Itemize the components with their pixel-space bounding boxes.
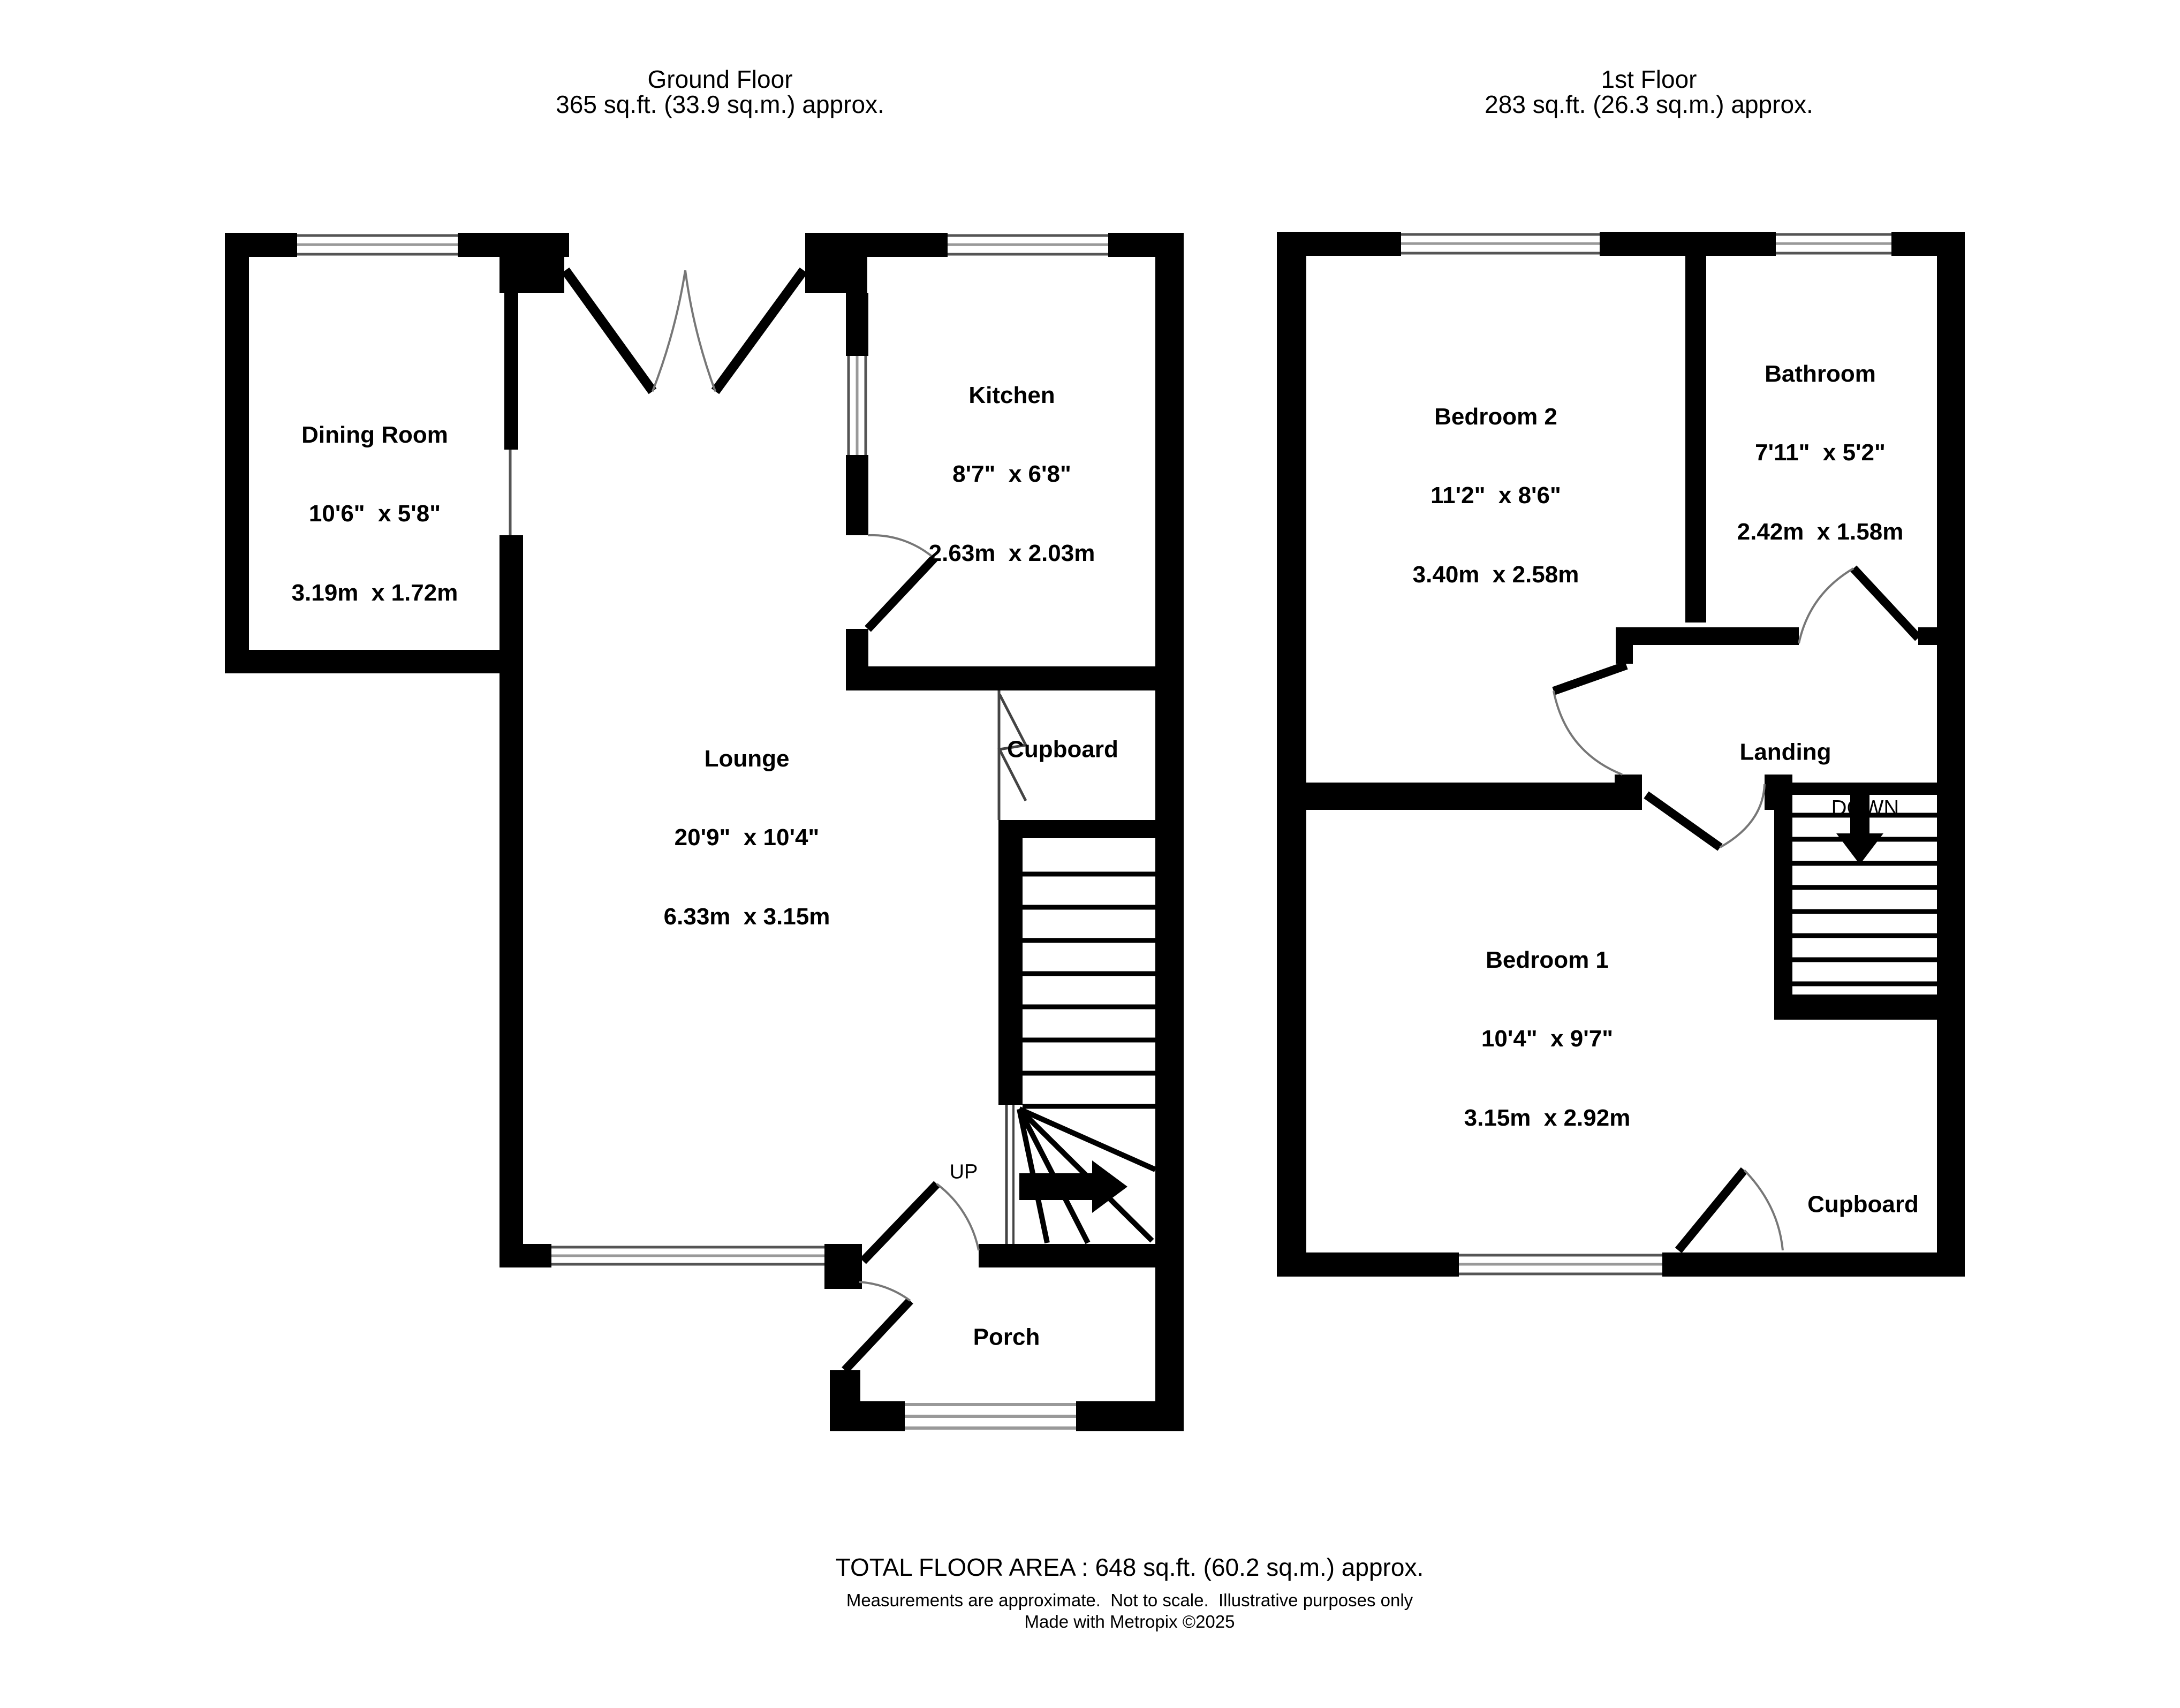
bedroom1-door: [1646, 784, 1765, 847]
up-arrow-icon: [1019, 1160, 1127, 1213]
disclaimer-text: Measurements are approximate. Not to sca…: [846, 1590, 1413, 1611]
kitchen-door: [868, 535, 934, 629]
bedroom2-window: [1401, 232, 1600, 256]
total-floor-area: TOTAL FLOOR AREA : 648 sq.ft. (60.2 sq.m…: [836, 1553, 1424, 1582]
porch-corner-stub: [824, 1244, 862, 1289]
first-cupboard-door: [1678, 1170, 1783, 1250]
bedroom1-window: [1459, 1252, 1662, 1277]
floor-plan: Ground Floor 365 sq.ft. (33.9 sq.m.) app…: [0, 0, 2180, 1708]
dining-lounge-corner-stub: [499, 233, 564, 293]
lounge-window: [551, 1244, 824, 1267]
dining-room-label: Dining Room 10'6" x 5'8" 3.19m x 1.72m: [292, 369, 458, 659]
lounge-label: Lounge 20'9" x 10'4" 6.33m x 3.15m: [664, 693, 830, 983]
kitchen-top-window: [948, 233, 1108, 257]
credit-text: Made with Metropix ©2025: [1024, 1612, 1235, 1632]
kitchen-label: Kitchen 8'7" x 6'8" 2.63m x 2.03m: [929, 329, 1095, 619]
bathroom-window: [1776, 232, 1891, 256]
porch-label: Porch: [973, 1324, 1040, 1350]
floor-plan-drawing: [0, 0, 2180, 1708]
ground-floor-title: Ground Floor: [647, 65, 792, 94]
bathroom-label: Bathroom 7'11" x 5'2" 2.42m x 1.58m: [1737, 308, 1904, 598]
lounge-double-doors: [565, 270, 804, 391]
lounge-porch-door: [863, 1184, 979, 1261]
bedroom2-door: [1554, 665, 1626, 775]
up-label: UP: [950, 1161, 978, 1184]
ground-floor-area: 365 sq.ft. (33.9 sq.m.) approx.: [556, 90, 884, 119]
kitchen-corner-stub: [805, 233, 867, 293]
ground-cupboard-label: Cupboard: [1007, 736, 1118, 762]
bedroom2-label: Bedroom 2 11'2" x 8'6" 3.40m x 2.58m: [1413, 351, 1579, 641]
bedroom1-label: Bedroom 1 10'4" x 9'7" 3.15m x 2.92m: [1464, 894, 1631, 1184]
first-floor-area: 283 sq.ft. (26.3 sq.m.) approx.: [1485, 90, 1813, 119]
porch-front-door: [845, 1282, 910, 1370]
landing-label: Landing: [1739, 739, 1831, 765]
first-floor-title: 1st Floor: [1601, 65, 1697, 94]
ground-stairs-treads: [1023, 874, 1155, 1106]
porch-window: [905, 1401, 1076, 1431]
down-label: DOWN: [1831, 796, 1899, 821]
kitchen-side-window: [846, 356, 868, 455]
first-cupboard-label: Cupboard: [1807, 1191, 1919, 1217]
dining-room-window: [297, 233, 458, 257]
